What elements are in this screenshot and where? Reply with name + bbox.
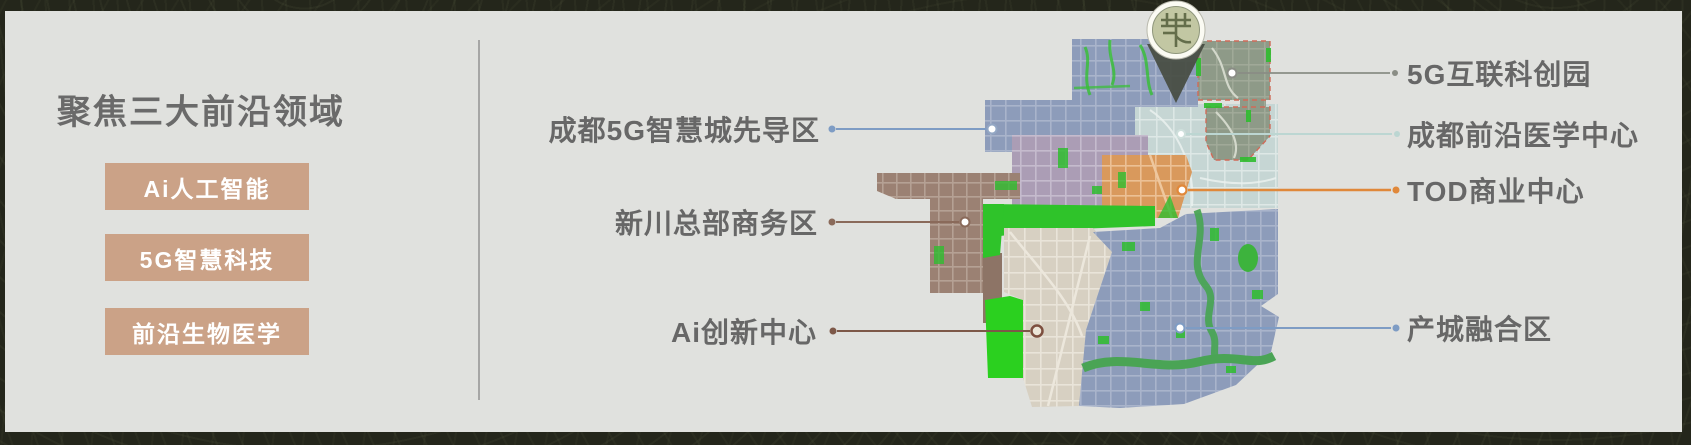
page-title: 聚焦三大前沿领域 xyxy=(57,85,345,134)
callout-label-pilot-zone: 成都5G智慧城先导区 xyxy=(549,109,820,149)
callout-label-ai-innovation: Ai创新中心 xyxy=(671,311,817,351)
map-park-large xyxy=(985,296,1023,378)
slide: 聚焦三大前沿领域 Ai人工智能 5G智慧科技 前沿生物医学 xyxy=(0,0,1691,445)
callout-label-headquarters: 新川总部商务区 xyxy=(615,202,818,242)
focus-item-biomed[interactable]: 前沿生物医学 xyxy=(105,308,309,355)
leader-pilot-zone xyxy=(829,125,997,134)
callout-label-integration: 产城融合区 xyxy=(1407,308,1552,348)
map-zone-integration xyxy=(1079,209,1279,408)
focus-item-ai[interactable]: Ai人工智能 xyxy=(105,163,309,210)
focus-item-5g-label: 5G智慧科技 xyxy=(140,241,275,275)
focus-item-biomed-label: 前沿生物医学 xyxy=(132,315,282,349)
map-zone-5g-tech-park xyxy=(1196,41,1271,162)
callout-label-tech-park: 5G互联科创园 xyxy=(1407,53,1591,93)
focus-item-5g[interactable]: 5G智慧科技 xyxy=(105,234,309,281)
callout-label-medical-center: 成都前沿医学中心 xyxy=(1407,114,1639,154)
callout-label-tod: TOD商业中心 xyxy=(1407,170,1585,210)
focus-item-ai-label: Ai人工智能 xyxy=(144,170,271,204)
vertical-divider xyxy=(478,40,480,400)
